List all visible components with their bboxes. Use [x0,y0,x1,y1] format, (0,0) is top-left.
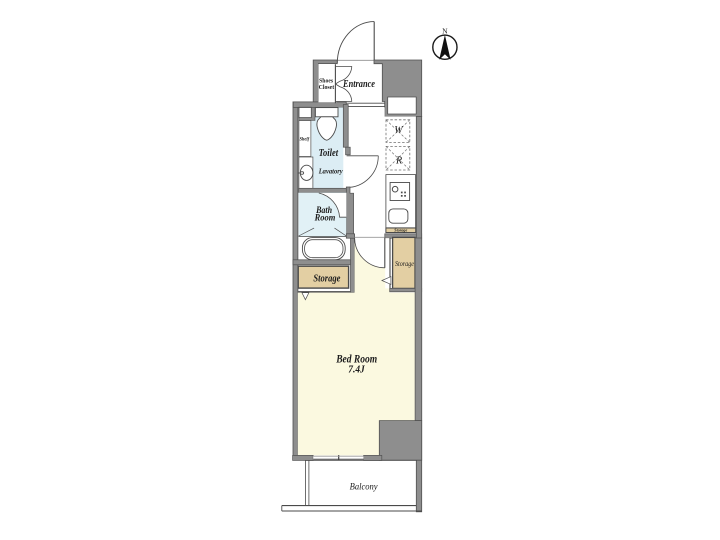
svg-text:Closet: Closet [319,84,335,91]
svg-text:7.4J: 7.4J [348,364,365,375]
svg-text:N: N [442,26,448,35]
svg-text:Balcony: Balcony [350,482,379,492]
svg-text:Toilet: Toilet [319,148,340,159]
svg-text:Shelf: Shelf [299,137,310,143]
svg-text:Storage: Storage [394,227,407,232]
svg-text:Storage: Storage [313,273,340,284]
svg-text:Entrance: Entrance [342,79,375,90]
svg-text:Storage: Storage [395,259,415,268]
svg-text:R: R [395,155,402,166]
svg-text:Lavatory: Lavatory [318,167,343,176]
svg-text:Room: Room [314,212,336,222]
